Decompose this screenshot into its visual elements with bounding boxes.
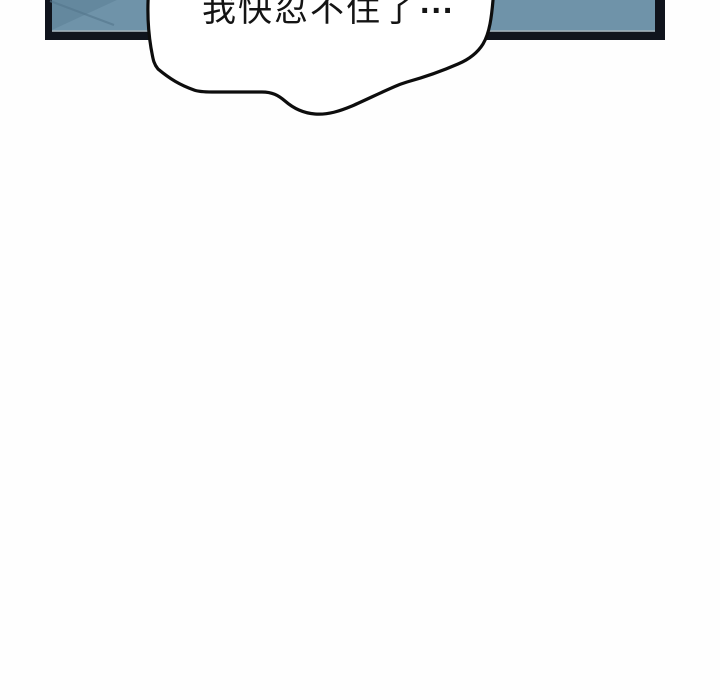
- dialogue-ellipsis: ...: [420, 0, 454, 19]
- panel-artwork: [0, 0, 720, 700]
- speech-bubble-text: 我快忍不住了...: [202, 0, 454, 27]
- dialogue-text: 我快忍不住了: [202, 0, 418, 29]
- comic-page: 我快忍不住了...: [0, 0, 720, 700]
